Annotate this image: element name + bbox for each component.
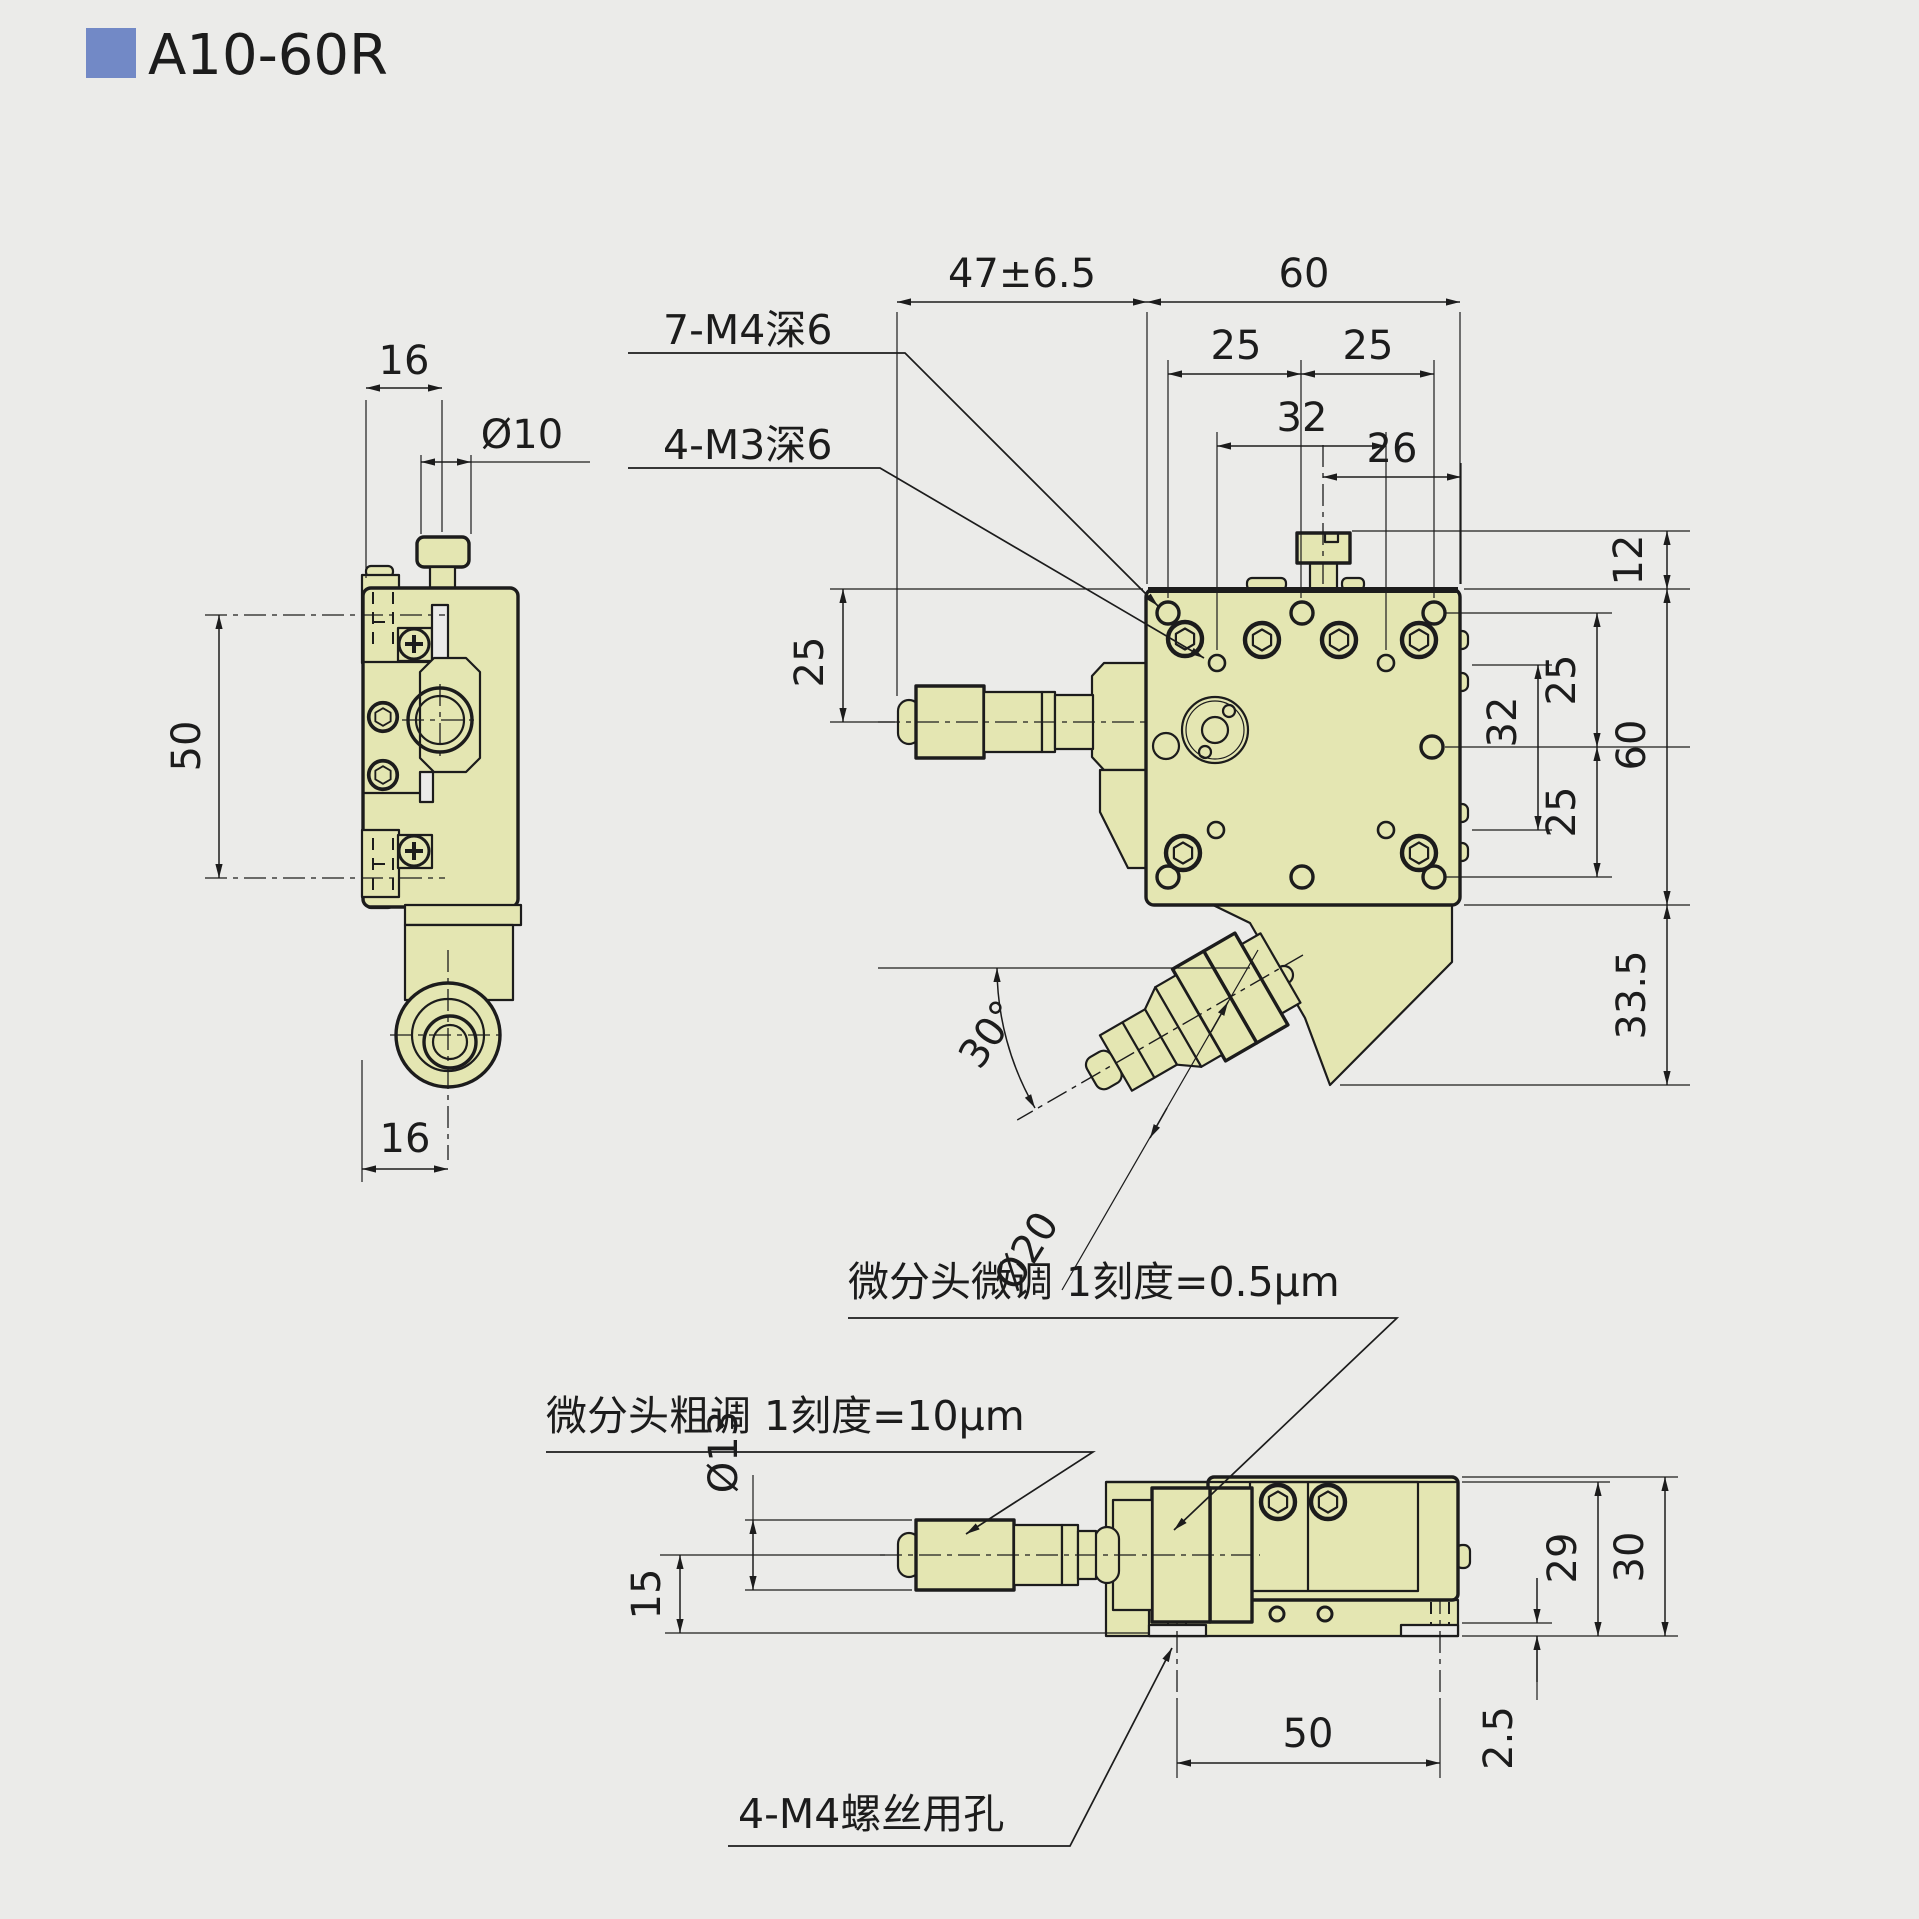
dim-base-step: 2.5 bbox=[1476, 1706, 1522, 1770]
label-coarse-adjust: 微分头粗调 1刻度=10μm bbox=[546, 1392, 1025, 1440]
dim-rows-bottom: 25 bbox=[1539, 787, 1585, 838]
dim-axis-height: 15 bbox=[624, 1569, 670, 1620]
dim-knob-height: 12 bbox=[1606, 535, 1652, 586]
dim-lower-height: 33.5 bbox=[1609, 950, 1655, 1039]
dim-hole-span: 50 bbox=[1283, 1711, 1334, 1757]
front-left-boss bbox=[1092, 663, 1148, 770]
title-accent-square bbox=[86, 28, 136, 78]
dim-m3-span-right: 32 bbox=[1480, 697, 1526, 748]
dim-travel: 47±6.5 bbox=[948, 251, 1096, 297]
dim-hole-left: 25 bbox=[1211, 323, 1262, 369]
label-base-holes: 4-M4螺丝用孔 bbox=[738, 1790, 1004, 1838]
dim-hole-right: 25 bbox=[1343, 323, 1394, 369]
dim-side-knob-center: 16 bbox=[380, 1116, 431, 1162]
page-title: A10-60R bbox=[148, 23, 388, 88]
label-fine-adjust: 微分头微调 1刻度=0.5μm bbox=[848, 1258, 1340, 1306]
drawing-sheet: A10-60R bbox=[0, 0, 1919, 1919]
dim-height: 60 bbox=[1609, 720, 1655, 771]
label-m3-holes: 4-M3深6 bbox=[663, 421, 832, 469]
dim-side-clamp-span: 50 bbox=[164, 721, 210, 772]
dim-block-height: 29 bbox=[1540, 1533, 1586, 1584]
label-m4-holes: 7-M4深6 bbox=[663, 306, 832, 354]
dim-total-height: 30 bbox=[1607, 1532, 1653, 1583]
side-clamp-knob bbox=[417, 537, 469, 567]
dim-axis-offset: 25 bbox=[787, 637, 833, 688]
dim-side-table-width: 16 bbox=[379, 338, 430, 384]
dim-thimble-dia: Ø13 bbox=[701, 1411, 747, 1493]
dim-rows-top: 25 bbox=[1539, 655, 1585, 706]
dim-screw-offset: 26 bbox=[1367, 426, 1418, 472]
dim-m3-span-top: 32 bbox=[1277, 395, 1328, 441]
dim-side-knob-dia: Ø10 bbox=[481, 412, 563, 458]
dim-width: 60 bbox=[1279, 251, 1330, 297]
